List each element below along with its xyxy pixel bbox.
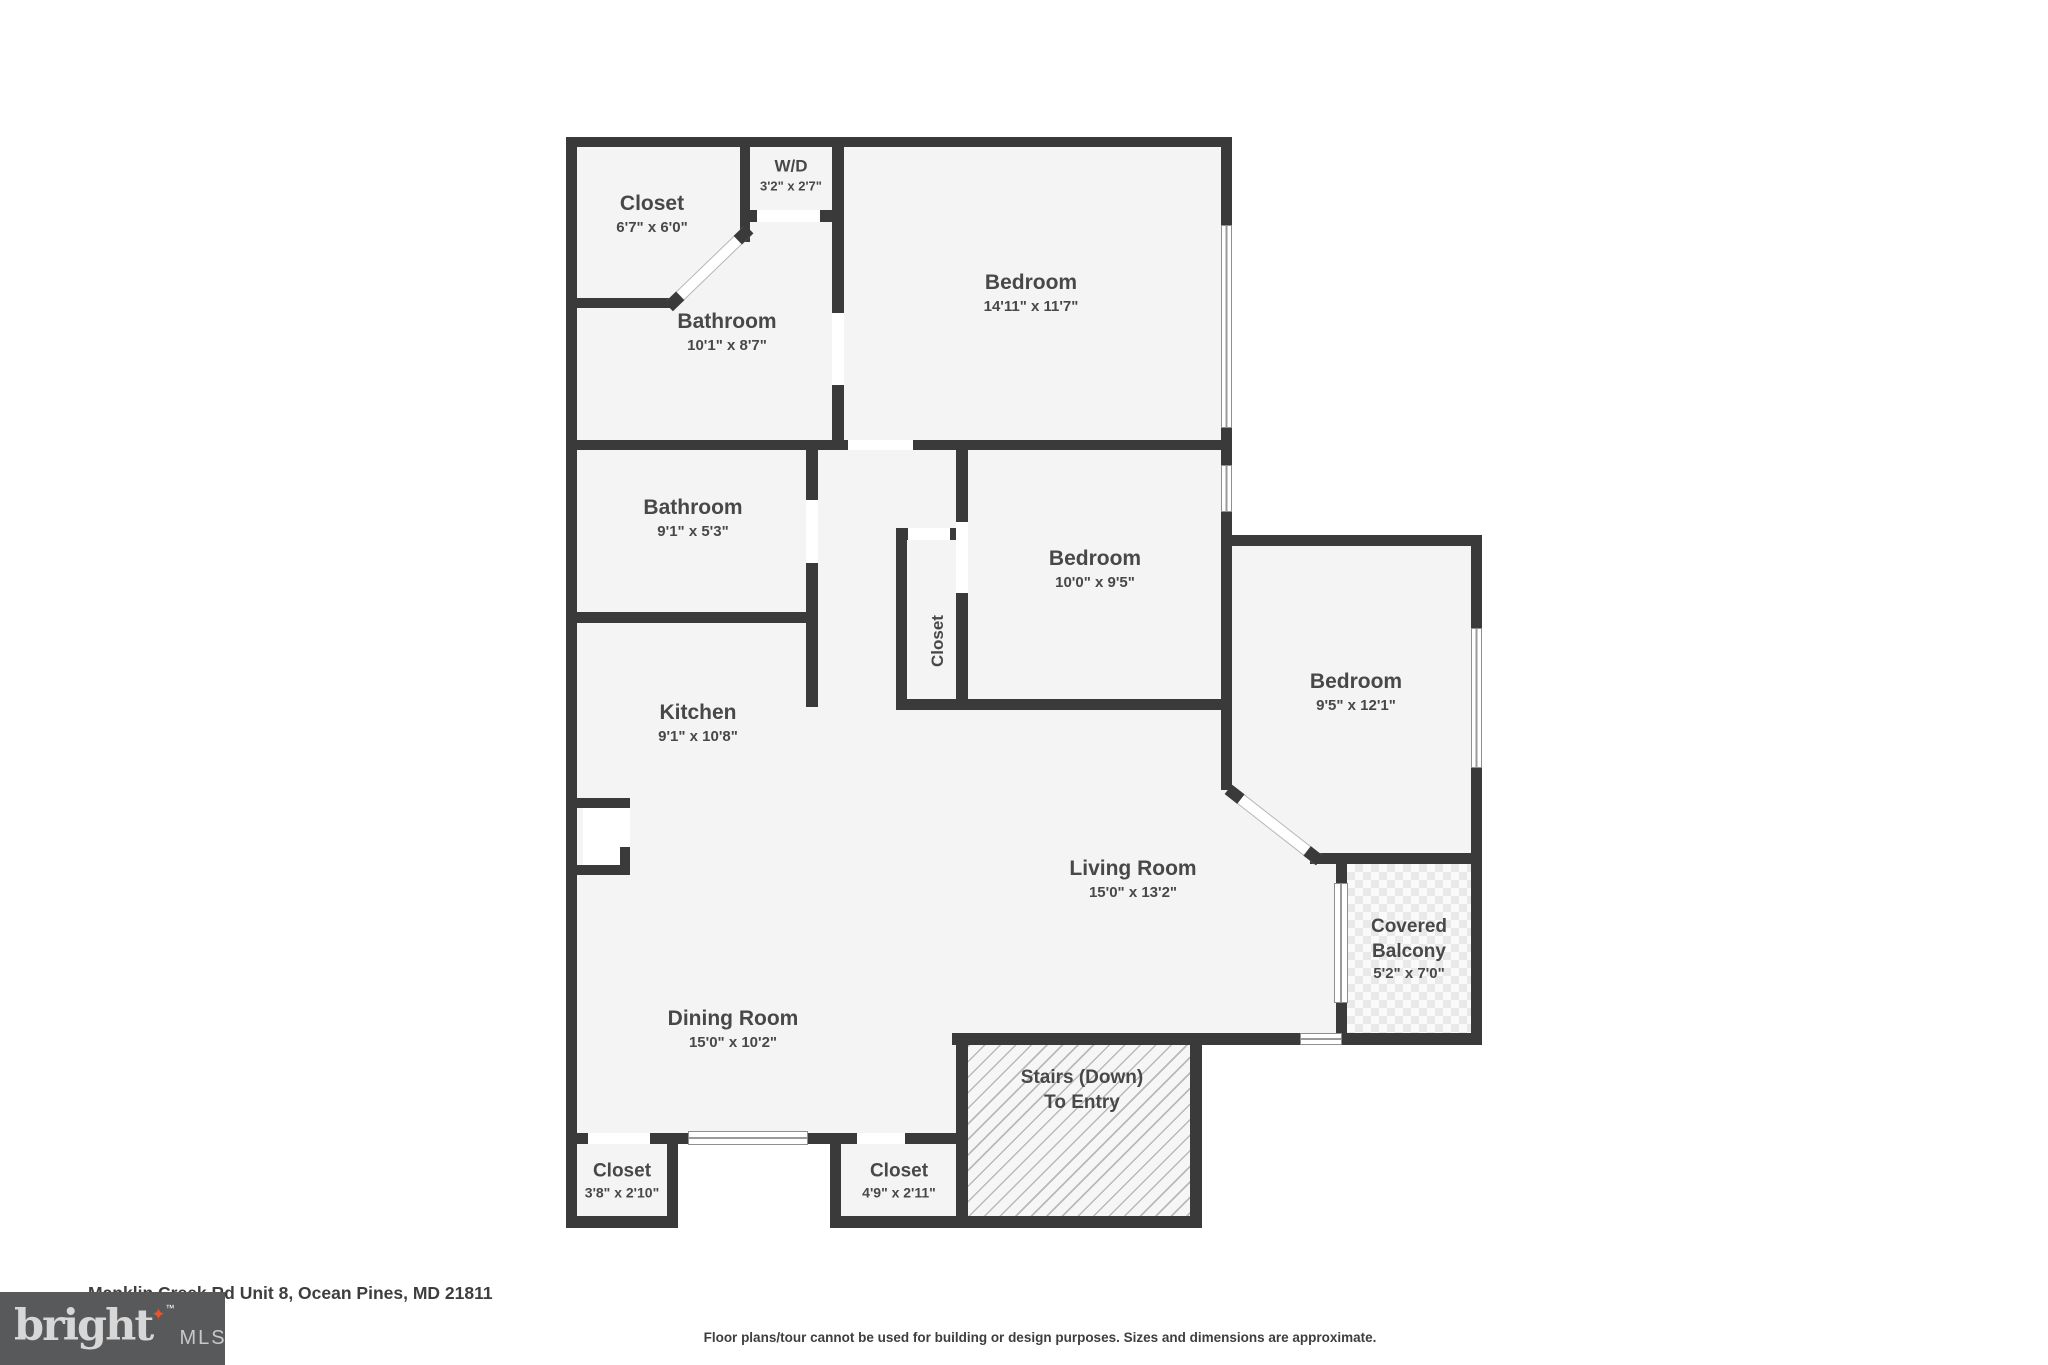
room-label-bedroom-right: Bedroom9'5" x 12'1" — [1310, 668, 1402, 716]
room-label-hall-closet: Closet — [927, 615, 949, 667]
brightmls-logo: bright ✦ ™ MLS — [0, 1292, 225, 1365]
room-label-line: Living Room — [1069, 855, 1196, 883]
room-floor — [1232, 710, 1346, 1045]
room-label-line: 10'0" x 9'5" — [1049, 573, 1141, 593]
room-label-closet-bottom-right: Closet4'9" x 2'11" — [862, 1159, 936, 1202]
room-label-line: 9'1" x 5'3" — [643, 522, 742, 542]
door-opening — [908, 528, 950, 540]
wall — [1221, 535, 1482, 546]
wall — [566, 137, 1232, 147]
wall — [667, 1133, 678, 1228]
room-label-closet-top-left: Closet6'7" x 6'0" — [616, 190, 687, 238]
room-label-line: Closet — [927, 615, 949, 667]
room-label-covered-balcony: CoveredBalcony5'2" x 7'0" — [1371, 914, 1447, 984]
room-label-line: Closet — [862, 1159, 936, 1184]
floor-plan: Closet6'7" x 6'0"W/D3'2" x 2'7"Bathroom1… — [0, 0, 2048, 1365]
room-label-line: 6'7" x 6'0" — [616, 218, 687, 238]
logo-star-icon: ✦ — [151, 1306, 165, 1323]
wall — [808, 1133, 832, 1144]
wall — [896, 699, 1232, 710]
room-label-line: Balcony — [1371, 939, 1447, 964]
door-opening — [588, 1133, 650, 1144]
room-label-line: 15'0" x 13'2" — [1069, 883, 1196, 903]
door-opening — [757, 210, 820, 222]
wall — [573, 865, 630, 875]
logo-mls-text: MLS — [180, 1328, 227, 1348]
sliding-door — [1334, 883, 1348, 1003]
room-label-line: Closet — [616, 190, 687, 218]
room-label-line: Closet — [585, 1159, 659, 1184]
wall — [566, 1216, 678, 1228]
wall — [1471, 535, 1482, 1044]
wall — [830, 1216, 1202, 1228]
door-opening — [832, 313, 844, 385]
room-label-line: Stairs (Down) — [1021, 1065, 1143, 1090]
room-label-bedroom-middle: Bedroom10'0" x 9'5" — [1049, 545, 1141, 593]
wall — [956, 1045, 968, 1228]
room-label-line: Bathroom — [643, 494, 742, 522]
room-label-line: 14'11" x 11'7" — [984, 297, 1079, 317]
room-label-line: 15'0" x 10'2" — [668, 1033, 799, 1053]
wall — [566, 298, 673, 308]
wall — [896, 528, 907, 710]
room-label-line: Covered — [1371, 914, 1447, 939]
door-opening — [620, 808, 630, 847]
room-label-line: 3'8" x 2'10" — [585, 1184, 659, 1202]
floorplan-page: Closet6'7" x 6'0"W/D3'2" x 2'7"Bathroom1… — [0, 0, 2048, 1365]
room-label-bathroom-upper: Bathroom10'1" x 8'7" — [677, 308, 776, 356]
room-label-line: To Entry — [1021, 1090, 1143, 1115]
wall — [952, 1033, 1482, 1045]
wall — [806, 450, 818, 707]
room-label-line: Bedroom — [1049, 545, 1141, 573]
room-label-living-room: Living Room15'0" x 13'2" — [1069, 855, 1196, 903]
logo-bright-text: bright — [14, 1304, 152, 1348]
room-label-line: Kitchen — [658, 699, 738, 727]
room-label-line: Dining Room — [668, 1005, 799, 1033]
room-label-bathroom-hall: Bathroom9'1" x 5'3" — [643, 494, 742, 542]
window — [1471, 628, 1482, 768]
wall — [832, 147, 844, 450]
sliding-door — [688, 1131, 808, 1145]
door-opening — [848, 440, 913, 450]
wall — [1190, 1045, 1202, 1228]
room-label-line: 10'1" x 8'7" — [677, 336, 776, 356]
room-label-line: Bathroom — [677, 308, 776, 336]
exterior-area — [1202, 1045, 1232, 1144]
door-opening — [806, 500, 818, 563]
room-label-line: W/D — [760, 156, 822, 178]
room-label-bedroom-upper: Bedroom14'11" x 11'7" — [984, 269, 1079, 317]
door-opening — [857, 1133, 905, 1144]
room-label-kitchen: Kitchen9'1" x 10'8" — [658, 699, 738, 747]
room-label-line: Bedroom — [984, 269, 1079, 297]
window — [1300, 1033, 1342, 1045]
room-label-stairs: Stairs (Down)To Entry — [1021, 1065, 1143, 1115]
window — [1221, 465, 1232, 512]
window — [1221, 225, 1232, 428]
room-label-dining-room: Dining Room15'0" x 10'2" — [668, 1005, 799, 1053]
room-label-washer-dryer: W/D3'2" x 2'7" — [760, 156, 822, 195]
room-label-line: 3'2" x 2'7" — [760, 178, 822, 195]
room-label-line: 9'5" x 12'1" — [1310, 696, 1402, 716]
exterior-area — [583, 808, 620, 865]
disclaimer-text: Floor plans/tour cannot be used for buil… — [704, 1330, 1377, 1345]
room-label-line: 4'9" x 2'11" — [862, 1184, 936, 1202]
door-opening — [956, 522, 968, 593]
wall — [566, 612, 818, 623]
room-label-line: Bedroom — [1310, 668, 1402, 696]
room-label-closet-bottom-left: Closet3'8" x 2'10" — [585, 1159, 659, 1202]
room-label-line: 5'2" x 7'0" — [1371, 964, 1447, 984]
logo-trademark: ™ — [166, 1304, 175, 1313]
room-label-line: 9'1" x 10'8" — [658, 727, 738, 747]
wall — [830, 1133, 841, 1228]
